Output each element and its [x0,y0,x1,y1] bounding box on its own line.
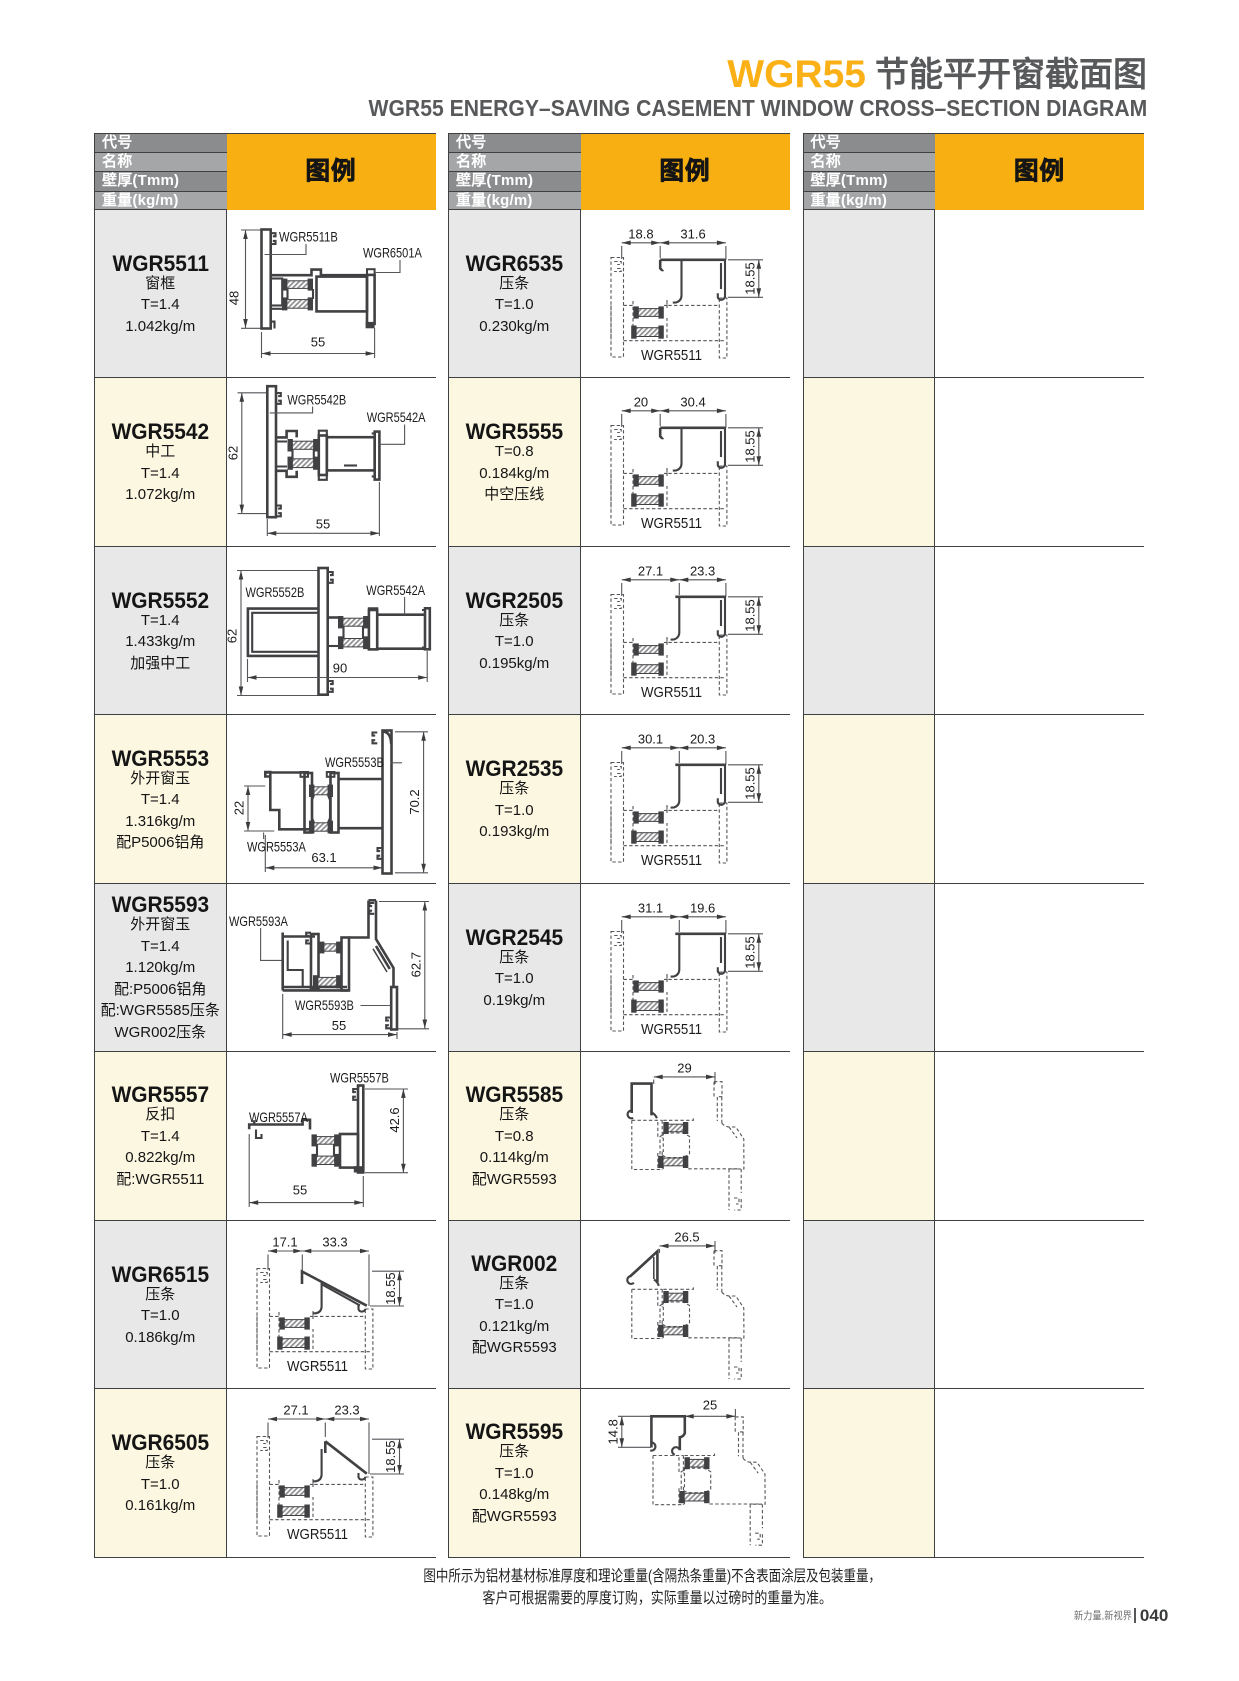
svg-text:WGR5557B: WGR5557B [330,1071,389,1086]
svg-text:20.3: 20.3 [689,732,714,747]
svg-text:31.1: 31.1 [637,900,662,915]
svg-text:30.1: 30.1 [637,732,662,747]
svg-text:23.3: 23.3 [334,1403,359,1418]
svg-text:20: 20 [633,395,647,410]
svg-text:WGR5511: WGR5511 [641,516,702,532]
svg-text:31.6: 31.6 [680,226,705,241]
svg-text:18.55: 18.55 [383,1440,398,1473]
svg-text:WGR5511: WGR5511 [287,1358,348,1374]
svg-text:26.5: 26.5 [674,1229,699,1244]
svg-text:25: 25 [702,1398,716,1413]
svg-text:17.1: 17.1 [272,1234,297,1249]
svg-text:WGR5511: WGR5511 [641,348,702,364]
svg-text:55: 55 [292,1183,306,1198]
svg-text:29: 29 [677,1061,691,1076]
svg-text:42.6: 42.6 [387,1108,402,1133]
svg-text:70.2: 70.2 [407,790,422,815]
svg-text:WGR5593A: WGR5593A [229,914,288,929]
svg-text:48: 48 [227,291,242,305]
svg-text:WGR5552B: WGR5552B [245,585,304,600]
svg-text:62: 62 [227,629,240,643]
svg-text:WGR5511: WGR5511 [641,1022,702,1038]
svg-text:WGR5542B: WGR5542B [287,393,346,408]
svg-text:63.1: 63.1 [311,850,336,865]
svg-text:19.6: 19.6 [689,900,714,915]
svg-text:18.55: 18.55 [742,936,757,969]
svg-text:18.55: 18.55 [742,599,757,632]
svg-text:WGR5511B: WGR5511B [279,230,338,245]
svg-text:30.4: 30.4 [680,395,705,410]
svg-text:90: 90 [332,660,346,675]
svg-text:33.3: 33.3 [322,1234,347,1249]
svg-text:62.7: 62.7 [408,952,423,977]
svg-text:27.1: 27.1 [283,1403,308,1418]
svg-text:55: 55 [331,1018,345,1033]
svg-text:14.8: 14.8 [605,1419,620,1444]
svg-text:WGR5511: WGR5511 [287,1527,348,1543]
svg-text:WGR5553A: WGR5553A [247,840,306,855]
svg-text:27.1: 27.1 [637,563,662,578]
svg-text:55: 55 [315,517,329,532]
svg-text:18.55: 18.55 [742,262,757,295]
svg-text:WGR5511: WGR5511 [641,685,702,701]
svg-text:WGR5593B: WGR5593B [295,998,354,1013]
svg-text:62: 62 [227,446,240,460]
svg-text:WGR5542A: WGR5542A [366,410,425,425]
svg-text:WGR5553B: WGR5553B [325,755,384,770]
svg-text:55: 55 [310,335,324,350]
svg-text:WGR6501A: WGR6501A [363,246,422,261]
svg-text:23.3: 23.3 [689,563,714,578]
svg-text:WGR5557A: WGR5557A [249,1110,308,1125]
svg-text:18.55: 18.55 [742,431,757,464]
svg-text:WGR5542A: WGR5542A [366,583,425,598]
svg-text:18.8: 18.8 [628,226,653,241]
svg-text:22: 22 [231,801,246,815]
svg-text:18.55: 18.55 [383,1272,398,1305]
svg-text:18.55: 18.55 [742,768,757,801]
svg-text:WGR5511: WGR5511 [641,853,702,869]
